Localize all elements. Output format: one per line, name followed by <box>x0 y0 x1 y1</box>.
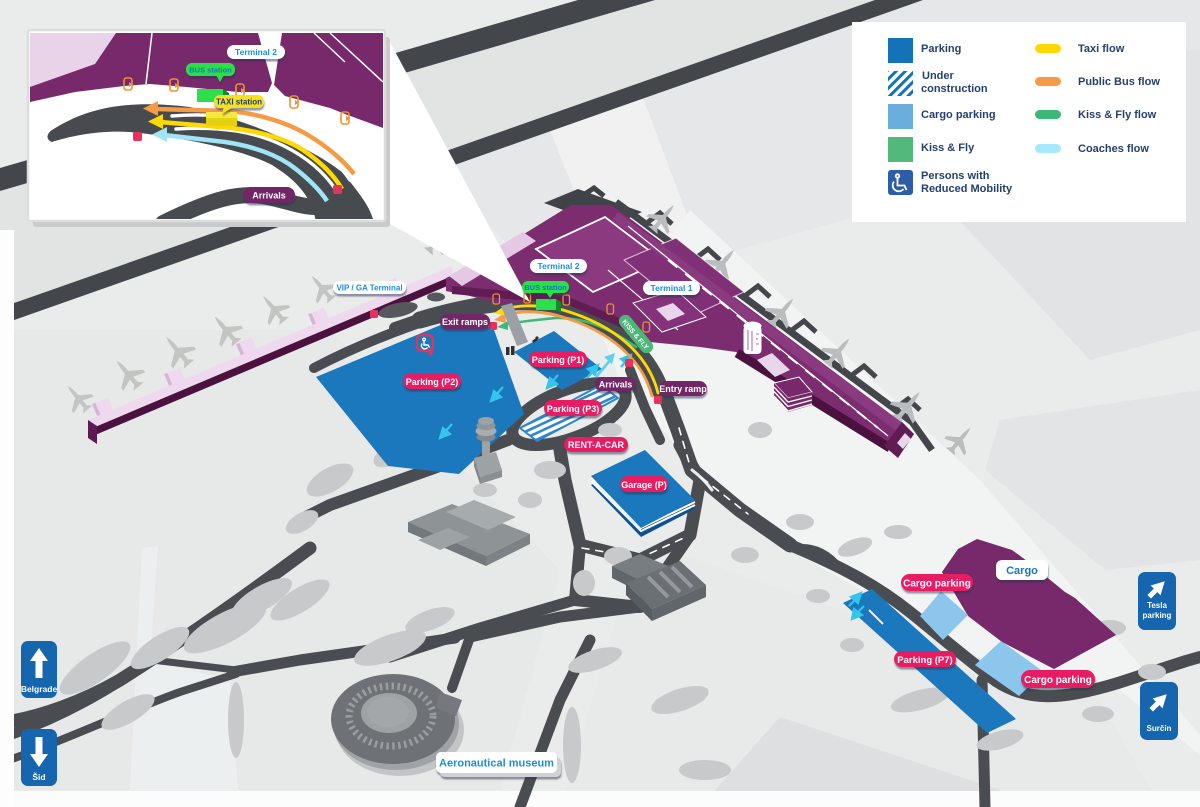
svg-text:Parking (P2): Parking (P2) <box>406 377 459 387</box>
svg-text:Parking (P1): Parking (P1) <box>532 355 585 365</box>
svg-text:Parking: Parking <box>921 43 961 55</box>
svg-text:Kiss & Fly flow: Kiss & Fly flow <box>1078 109 1157 121</box>
svg-text:Under: Under <box>922 70 955 82</box>
svg-text:Arrivals: Arrivals <box>252 191 286 201</box>
svg-text:parking: parking <box>1143 611 1172 620</box>
svg-text:Tesla: Tesla <box>1147 601 1167 610</box>
svg-text:Terminal 2: Terminal 2 <box>235 47 277 57</box>
svg-text:Entry ramp: Entry ramp <box>659 384 707 394</box>
svg-text:RENT-A-CAR: RENT-A-CAR <box>568 440 624 450</box>
svg-text:Coaches flow: Coaches flow <box>1078 143 1149 155</box>
svg-text:Parking (P3): Parking (P3) <box>547 404 600 414</box>
svg-text:Belgrade: Belgrade <box>21 684 58 694</box>
svg-text:Šid: Šid <box>32 771 45 782</box>
svg-text:TAXI station: TAXI station <box>216 98 262 107</box>
svg-text:construction: construction <box>921 83 988 95</box>
svg-text:Kiss & Fly: Kiss & Fly <box>921 142 975 154</box>
svg-text:Exit ramps: Exit ramps <box>442 317 488 327</box>
svg-text:Cargo parking: Cargo parking <box>921 109 996 121</box>
svg-text:BUS station: BUS station <box>189 66 232 75</box>
svg-text:Arrivals: Arrivals <box>599 380 633 390</box>
svg-text:Garage (P): Garage (P) <box>621 480 667 490</box>
svg-text:Persons with: Persons with <box>921 170 990 182</box>
svg-text:BUS station: BUS station <box>524 283 567 292</box>
svg-text:Terminal 1: Terminal 1 <box>651 283 693 293</box>
svg-text:VIP / GA Terminal: VIP / GA Terminal <box>336 284 402 293</box>
svg-text:Surčin: Surčin <box>1147 724 1172 733</box>
svg-text:Cargo: Cargo <box>1006 565 1038 577</box>
svg-text:Public Bus flow: Public Bus flow <box>1078 76 1160 88</box>
svg-text:Aeronautical museum: Aeronautical museum <box>439 758 554 770</box>
svg-text:Taxi flow: Taxi flow <box>1078 43 1125 55</box>
svg-text:Terminal 2: Terminal 2 <box>538 261 580 271</box>
svg-text:Reduced Mobility: Reduced Mobility <box>921 183 1013 195</box>
svg-text:Parking (P7): Parking (P7) <box>897 655 952 666</box>
svg-text:Cargo parking: Cargo parking <box>1024 675 1092 686</box>
svg-text:Cargo parking: Cargo parking <box>903 579 971 590</box>
